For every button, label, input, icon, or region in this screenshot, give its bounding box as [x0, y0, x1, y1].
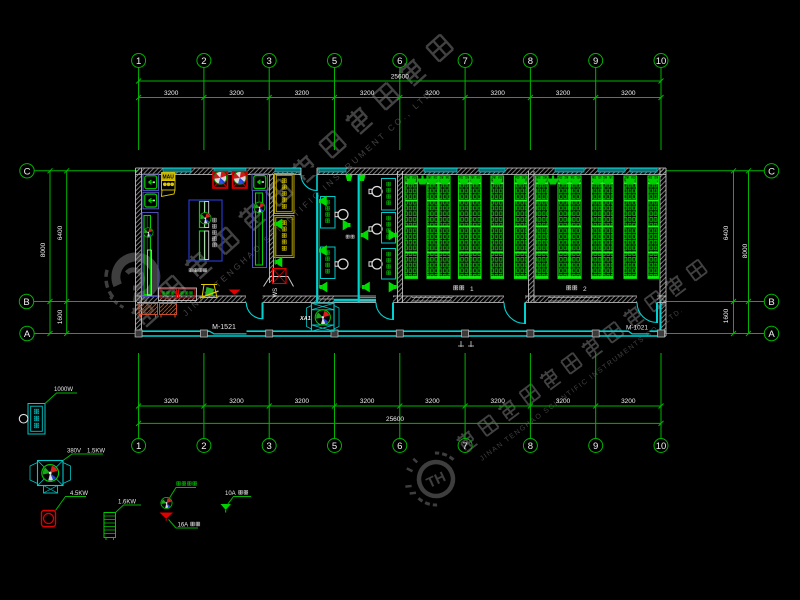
svg-text:7: 7 — [462, 441, 467, 452]
svg-text:10A: 10A — [225, 491, 236, 497]
svg-text:9: 9 — [593, 441, 598, 452]
svg-text:M-1521: M-1521 — [212, 324, 236, 331]
svg-text:3200: 3200 — [164, 398, 179, 405]
svg-text:1: 1 — [136, 56, 141, 67]
svg-text:6: 6 — [397, 56, 402, 67]
svg-text:8: 8 — [528, 56, 533, 67]
svg-text:1600: 1600 — [723, 308, 730, 323]
svg-text:25600: 25600 — [391, 74, 409, 81]
svg-text:3200: 3200 — [621, 398, 636, 405]
svg-text:3200: 3200 — [360, 90, 375, 97]
svg-text:1.6KW: 1.6KW — [118, 500, 136, 506]
svg-text:1: 1 — [470, 286, 474, 293]
svg-text:A: A — [24, 329, 31, 340]
svg-text:3200: 3200 — [556, 90, 571, 97]
svg-text:16A: 16A — [178, 523, 189, 529]
svg-text:8000: 8000 — [742, 243, 749, 258]
svg-text:5: 5 — [332, 56, 337, 67]
svg-text:2: 2 — [201, 441, 206, 452]
svg-text:C: C — [768, 166, 775, 177]
svg-text:3200: 3200 — [164, 90, 179, 97]
svg-text:B: B — [23, 297, 29, 308]
svg-text:1.5KW: 1.5KW — [87, 449, 105, 455]
svg-text:3200: 3200 — [360, 398, 375, 405]
svg-text:380V: 380V — [67, 449, 81, 455]
svg-text:6400: 6400 — [723, 225, 730, 240]
svg-text:MAU: MAU — [163, 175, 175, 181]
svg-text:3200: 3200 — [295, 90, 310, 97]
svg-text:8: 8 — [528, 441, 533, 452]
svg-text:3200: 3200 — [621, 90, 636, 97]
svg-text:B: B — [768, 297, 774, 308]
svg-text:7: 7 — [462, 56, 467, 67]
svg-text:3200: 3200 — [490, 398, 505, 405]
svg-text:4.5KW: 4.5KW — [70, 491, 88, 497]
svg-text:WS: WS — [273, 288, 279, 298]
svg-text:3200: 3200 — [490, 90, 505, 97]
svg-text:3200: 3200 — [425, 90, 440, 97]
svg-text:A: A — [768, 329, 775, 340]
svg-text:6: 6 — [397, 441, 402, 452]
svg-text:9: 9 — [593, 56, 598, 67]
svg-text:3200: 3200 — [229, 90, 244, 97]
svg-text:3200: 3200 — [425, 398, 440, 405]
svg-text:8000: 8000 — [40, 242, 47, 257]
svg-text:6400: 6400 — [57, 225, 64, 240]
svg-text:3200: 3200 — [556, 398, 571, 405]
svg-text:25600: 25600 — [386, 416, 404, 423]
svg-text:3: 3 — [267, 441, 272, 452]
svg-text:10: 10 — [656, 56, 667, 67]
svg-text:2: 2 — [583, 286, 587, 293]
svg-text:XA1: XA1 — [299, 316, 311, 322]
svg-text:3: 3 — [267, 56, 272, 67]
svg-text:1000W: 1000W — [54, 387, 73, 393]
svg-text:1600: 1600 — [57, 309, 64, 324]
svg-text:10: 10 — [656, 441, 667, 452]
svg-text:C: C — [24, 166, 31, 177]
svg-text:M-1021: M-1021 — [626, 325, 648, 332]
svg-text:3200: 3200 — [229, 398, 244, 405]
svg-text:3200: 3200 — [295, 398, 310, 405]
svg-text:5: 5 — [332, 441, 337, 452]
svg-text:1: 1 — [136, 441, 141, 452]
svg-text:2: 2 — [201, 56, 206, 67]
